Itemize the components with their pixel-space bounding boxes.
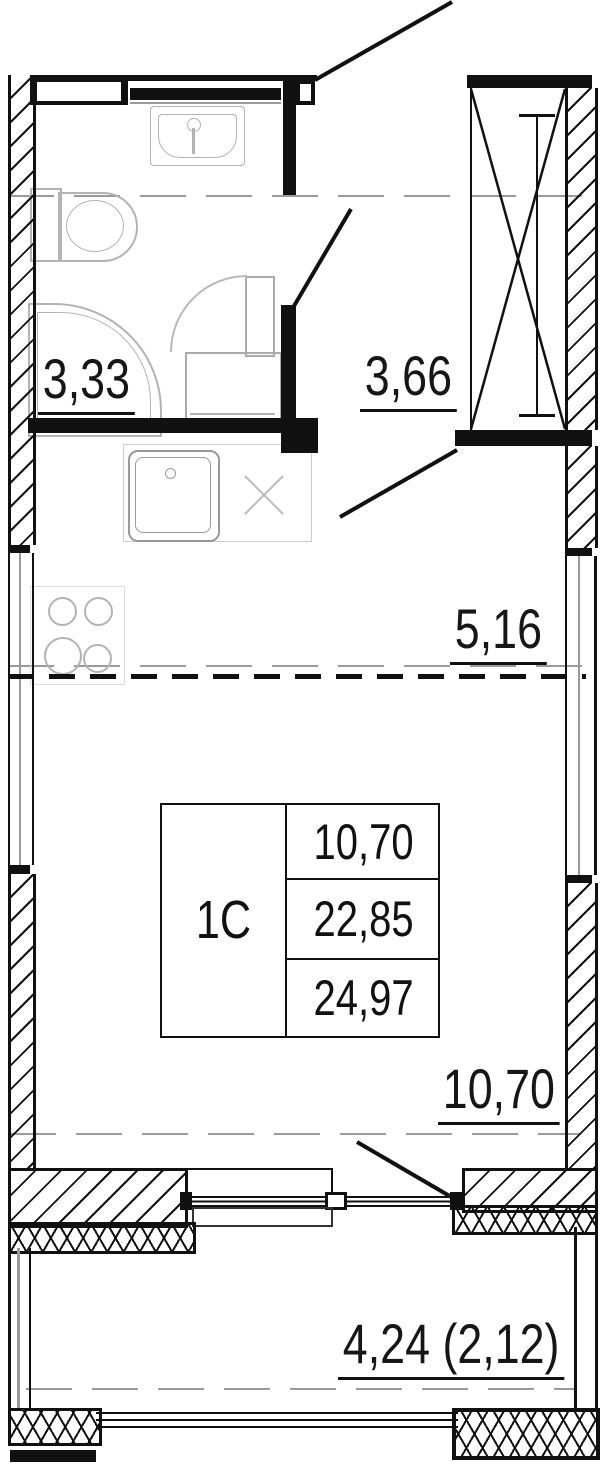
stove-burner-4: [83, 644, 112, 673]
left-wall-band-2: [8, 865, 30, 874]
floor-plan: 1С 10,70 22,85 24,97 3,33 3,66 5,16 10,7…: [0, 0, 600, 1468]
bathroom-bottom-wall: [28, 418, 281, 433]
washing-machine-line: [190, 413, 275, 415]
bath-sink-faucet-stem: [192, 128, 195, 154]
window-post-left: [180, 1192, 192, 1210]
room-label-kitchen: 5,16: [450, 600, 571, 665]
wall-line-over-window: [182, 1168, 333, 1170]
right-wall-band-2: [565, 875, 592, 883]
room-label-bathroom: 3,33: [38, 350, 159, 415]
right-wall-band-1: [565, 548, 592, 556]
room-label-balcony: 4,24 (2,12): [338, 1315, 600, 1380]
right-wall-upper: [565, 88, 598, 430]
room-label-living: 10,70: [438, 1060, 590, 1125]
unit-type-label: 1С: [196, 893, 251, 947]
balcony-corner-left: [8, 1408, 102, 1446]
entry-threshold-line: [130, 102, 281, 104]
reference-line-living: [10, 1133, 580, 1135]
unit-stat-row-1: 10,70: [287, 805, 440, 878]
vent-shaft: [37, 82, 121, 101]
leader-entry: [315, 2, 452, 80]
stove-burner-1: [48, 597, 77, 626]
top-wall-right: [467, 75, 592, 88]
zone-dashed-line: [8, 674, 586, 679]
kitchen-sink-faucet-icon: [165, 468, 176, 479]
right-wall-mid: [565, 446, 598, 548]
balcony-step-bar: [10, 1450, 96, 1462]
wardrobe-rail: [536, 116, 538, 416]
wardrobe-rail-cap-top: [519, 114, 555, 117]
toilet-bowl-symbol: [66, 200, 124, 252]
unit-stat-living: 10,70: [313, 817, 413, 867]
bath-door-swing-arc: [171, 276, 247, 352]
unit-stat-row-3: 24,97: [287, 960, 440, 1036]
bottom-pier-left: [8, 1168, 188, 1228]
balcony-door-leaf: [357, 1142, 453, 1198]
wardrobe-cross-2: [471, 89, 565, 429]
kitchen-corner-block: [281, 418, 318, 453]
balcony-corner-right: [452, 1408, 600, 1460]
leader-kitchen: [340, 450, 457, 517]
room-label-hallway: 3,66: [360, 347, 481, 412]
left-wall-band-1: [8, 545, 30, 553]
unit-stat-row-2: 22,85: [287, 880, 440, 958]
column-square: [296, 80, 315, 105]
unit-type-cell: 1С: [162, 803, 285, 1036]
entry-door-band: [130, 88, 281, 100]
window-pane-2: [347, 1196, 450, 1207]
wardrobe-rail-cap-bottom: [519, 414, 555, 417]
reference-line-balcony: [26, 1388, 574, 1390]
unit-stat-total: 24,97: [313, 973, 413, 1023]
pillar-mid: [281, 305, 296, 418]
leader-bath-door: [294, 209, 351, 306]
window-pane-1: [192, 1196, 325, 1207]
outer-sill: [192, 1207, 333, 1227]
stove-outline: [30, 586, 125, 685]
pillar-top: [283, 75, 296, 195]
wardrobe-cross-1: [471, 89, 565, 429]
unit-stat-total-living: 22,85: [313, 894, 413, 944]
entry-frame-notch-1: [139, 81, 161, 88]
entry-frame-notch-2: [244, 81, 266, 88]
left-wall-upper: [8, 75, 36, 545]
stove-burner-3: [44, 637, 82, 675]
balcony-glazing: [96, 1412, 458, 1428]
hall-bottom-band: [455, 430, 592, 446]
right-wall-lower: [565, 883, 598, 1168]
bath-door-leaf: [245, 276, 275, 357]
balcony-left-wall: [8, 1248, 31, 1410]
insulation-left: [8, 1222, 196, 1254]
stove-burner-2: [84, 597, 113, 626]
left-wall-lower: [8, 874, 36, 1168]
left-window: [8, 553, 34, 865]
